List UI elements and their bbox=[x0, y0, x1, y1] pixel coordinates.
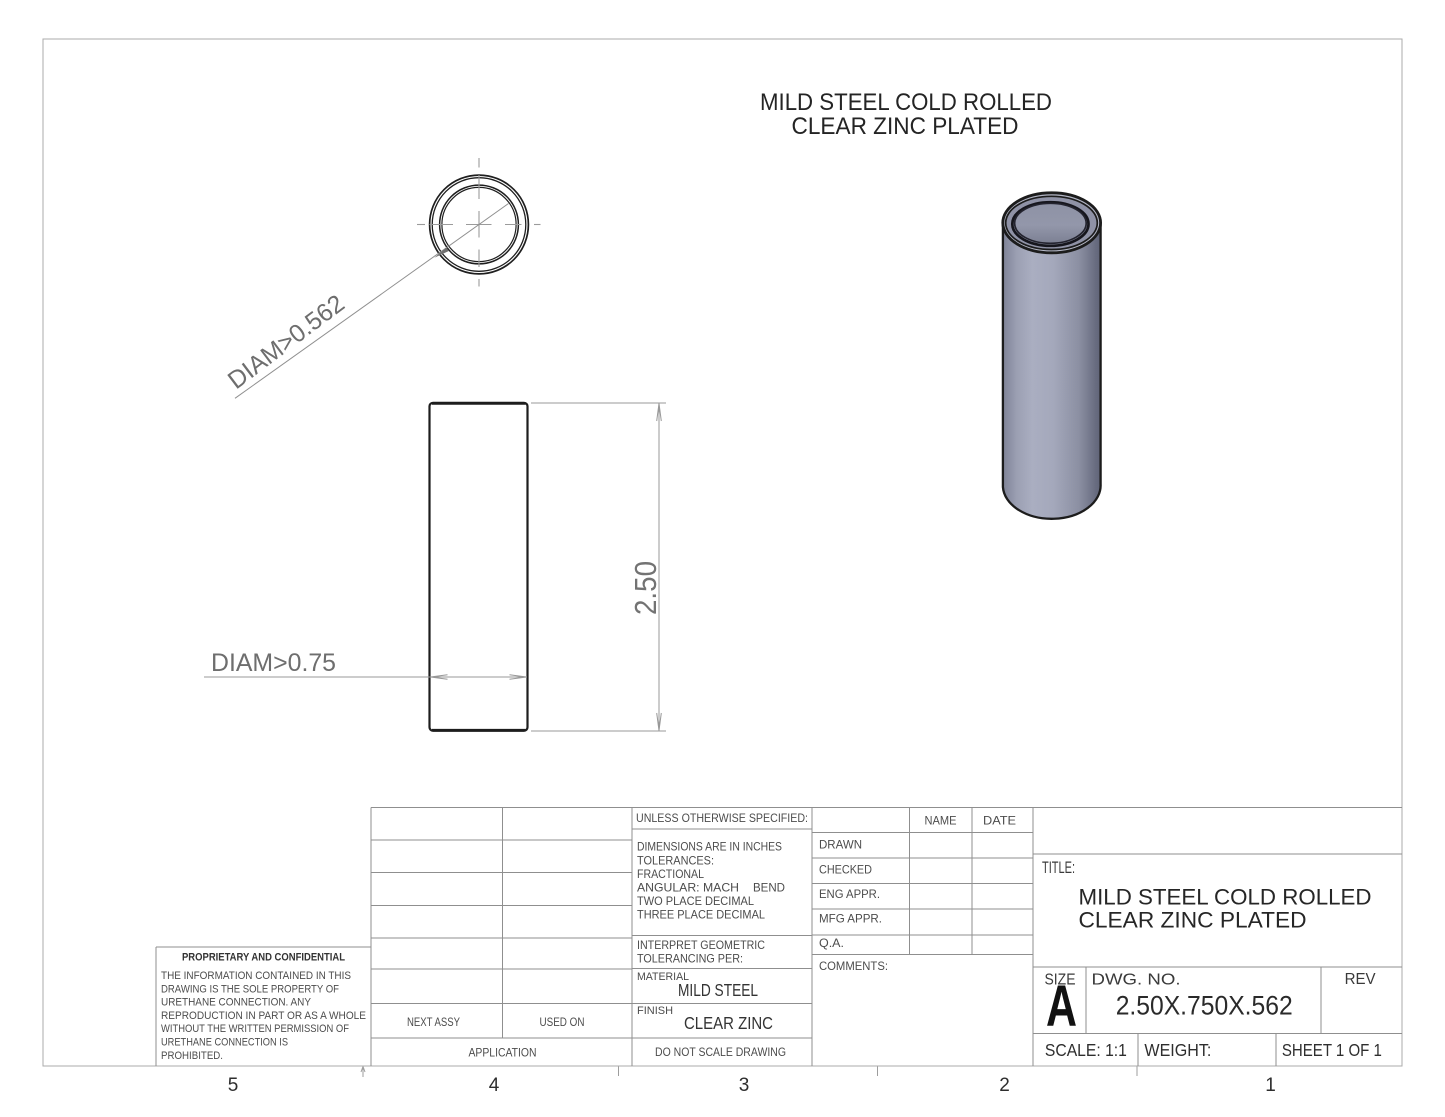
svg-text:BEND: BEND bbox=[753, 881, 785, 895]
svg-text:TWO PLACE DECIMAL: TWO PLACE DECIMAL bbox=[637, 894, 754, 908]
svg-text:CLEAR ZINC PLATED: CLEAR ZINC PLATED bbox=[1079, 908, 1307, 933]
svg-text:MILD STEEL COLD ROLLED: MILD STEEL COLD ROLLED bbox=[760, 89, 1052, 116]
svg-text:5: 5 bbox=[228, 1075, 239, 1096]
svg-text:CLEAR ZINC PLATED: CLEAR ZINC PLATED bbox=[792, 113, 1019, 140]
svg-text:FRACTIONAL: FRACTIONAL bbox=[637, 867, 704, 881]
svg-text:COMMENTS:: COMMENTS: bbox=[819, 959, 888, 973]
svg-text:3: 3 bbox=[739, 1075, 750, 1096]
svg-text:Q.A.: Q.A. bbox=[819, 936, 844, 950]
svg-text:WITHOUT THE WRITTEN PERMISSION: WITHOUT THE WRITTEN PERMISSION OF bbox=[161, 1023, 349, 1035]
svg-text:REPRODUCTION IN PART OR AS A W: REPRODUCTION IN PART OR AS A WHOLE bbox=[161, 1010, 366, 1022]
svg-text:2.50X.750X.562: 2.50X.750X.562 bbox=[1116, 991, 1293, 1021]
svg-text:DRAWING IS THE SOLE PROPERTY O: DRAWING IS THE SOLE PROPERTY OF bbox=[161, 983, 339, 995]
svg-text:TOLERANCING PER:: TOLERANCING PER: bbox=[637, 952, 743, 966]
svg-text:FINISH: FINISH bbox=[637, 1005, 673, 1017]
svg-text:SCALE: 1:1: SCALE: 1:1 bbox=[1045, 1040, 1127, 1060]
svg-text:4: 4 bbox=[489, 1075, 500, 1096]
svg-text:DIAM>0.75: DIAM>0.75 bbox=[211, 649, 336, 677]
svg-text:APPLICATION: APPLICATION bbox=[469, 1046, 537, 1060]
svg-text:ANGULAR: MACH: ANGULAR: MACH bbox=[637, 881, 739, 895]
svg-text:THREE PLACE DECIMAL: THREE PLACE DECIMAL bbox=[637, 908, 765, 922]
svg-text:INTERPRET GEOMETRIC: INTERPRET GEOMETRIC bbox=[637, 938, 765, 952]
svg-text:WEIGHT:: WEIGHT: bbox=[1144, 1040, 1211, 1060]
svg-text:MILD STEEL: MILD STEEL bbox=[678, 980, 758, 1000]
svg-text:2.50: 2.50 bbox=[628, 561, 663, 615]
svg-text:MILD STEEL COLD ROLLED: MILD STEEL COLD ROLLED bbox=[1079, 885, 1372, 910]
svg-text:TOLERANCES:: TOLERANCES: bbox=[637, 854, 714, 868]
svg-text:DATE: DATE bbox=[983, 814, 1016, 828]
svg-text:DWG. NO.: DWG. NO. bbox=[1092, 972, 1181, 989]
svg-text:SHEET 1 OF 1: SHEET 1 OF 1 bbox=[1282, 1040, 1382, 1060]
svg-text:PROHIBITED.: PROHIBITED. bbox=[161, 1050, 223, 1062]
svg-text:UNLESS OTHERWISE SPECIFIED:: UNLESS OTHERWISE SPECIFIED: bbox=[636, 811, 808, 825]
svg-text:URETHANE CONNECTION. ANY: URETHANE CONNECTION. ANY bbox=[161, 997, 312, 1009]
svg-text:NEXT ASSY: NEXT ASSY bbox=[407, 1015, 460, 1029]
svg-text:DIMENSIONS ARE IN INCHES: DIMENSIONS ARE IN INCHES bbox=[637, 840, 782, 854]
svg-text:A: A bbox=[1046, 974, 1077, 1039]
svg-text:NAME: NAME bbox=[925, 814, 957, 828]
svg-text:TITLE:: TITLE: bbox=[1042, 859, 1075, 877]
svg-text:CHECKED: CHECKED bbox=[819, 863, 872, 877]
svg-text:DRAWN: DRAWN bbox=[819, 838, 862, 852]
svg-text:USED ON: USED ON bbox=[540, 1015, 585, 1029]
svg-text:1: 1 bbox=[1265, 1075, 1276, 1096]
svg-text:PROPRIETARY AND CONFIDENTIAL: PROPRIETARY AND CONFIDENTIAL bbox=[182, 952, 345, 964]
svg-text:CLEAR ZINC: CLEAR ZINC bbox=[684, 1013, 773, 1033]
svg-text:ENG APPR.: ENG APPR. bbox=[819, 887, 880, 901]
svg-text:URETHANE CONNECTION IS: URETHANE CONNECTION IS bbox=[161, 1037, 288, 1049]
svg-text:THE INFORMATION CONTAINED IN T: THE INFORMATION CONTAINED IN THIS bbox=[161, 970, 351, 982]
svg-text:2: 2 bbox=[999, 1075, 1010, 1096]
svg-text:DO NOT SCALE DRAWING: DO NOT SCALE DRAWING bbox=[655, 1045, 786, 1059]
svg-text:MFG APPR.: MFG APPR. bbox=[819, 912, 882, 926]
svg-text:REV: REV bbox=[1345, 971, 1376, 988]
